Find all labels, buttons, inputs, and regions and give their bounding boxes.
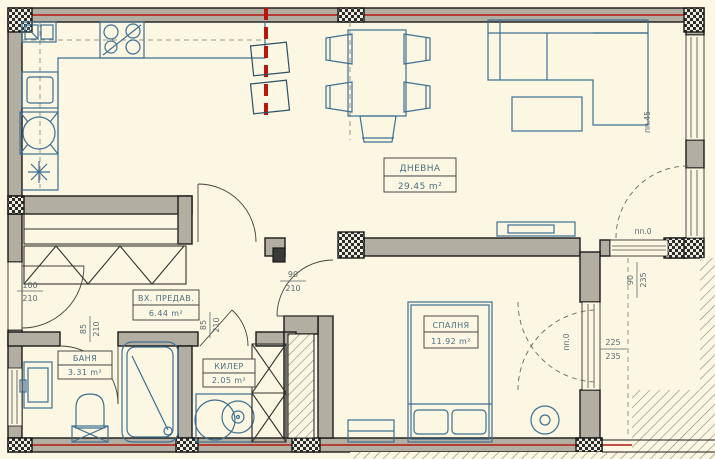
column-bottom-c <box>576 438 602 452</box>
hall-name: ВХ. ПРЕДАВ. <box>138 294 194 303</box>
dim-closet-door: 85 210 <box>199 312 221 338</box>
label-living: ДНЕВНА 29.45 m² <box>384 158 456 192</box>
bedroom-top-wall <box>364 238 580 256</box>
column-center <box>338 232 364 258</box>
dining-set <box>326 22 430 142</box>
dim-bath-door: 85 210 <box>79 316 101 342</box>
left-wall-mid <box>8 214 22 262</box>
washing-machine-icon <box>195 394 254 442</box>
dim-terrace-door: 225 235 <box>600 338 627 361</box>
round-sink-icon <box>20 112 58 154</box>
chair-icon-right-2 <box>404 82 430 112</box>
dim-entrance-h: 210 <box>22 294 37 303</box>
bedroom-right-wall-up <box>580 252 600 302</box>
hall-wall-jog <box>178 196 192 244</box>
closet-area: 2.05 m² <box>212 376 246 385</box>
column-top-mid <box>338 8 364 22</box>
shelf-unit-icon <box>252 344 286 442</box>
dim-closet-h: 210 <box>212 317 221 332</box>
right-wall-b <box>686 140 704 168</box>
left-wall-upper <box>8 22 22 196</box>
bath-name: БАНЯ <box>73 354 97 363</box>
living-room-door <box>198 184 256 242</box>
column-bottom-a <box>176 438 198 452</box>
boiler-star-icon <box>28 161 50 183</box>
bathtub-icon <box>122 342 178 442</box>
dim-bedroom-h: 210 <box>285 284 300 293</box>
dim-balcony-window: 90 235 <box>626 262 648 298</box>
bath-area: 3.31 m² <box>68 368 102 377</box>
sill-label-terrace: пп.0 <box>562 333 571 350</box>
dim-balcony-h: 235 <box>639 272 648 287</box>
sill-label-right: пп.45 <box>643 111 652 133</box>
entrance-opening <box>8 262 22 330</box>
balcony-wall-a <box>600 240 610 256</box>
sofa-area <box>488 20 648 131</box>
bedroom-name: СПАЛНЯ <box>432 321 469 330</box>
dim-entrance-w: 100 <box>22 281 37 290</box>
window-right-top <box>686 35 704 140</box>
hall-area: 6.44 m² <box>149 309 183 318</box>
dining-table-icon <box>348 30 406 116</box>
bottom-edge-hatch <box>350 452 715 459</box>
right-edge-hatch <box>700 258 715 392</box>
pouf-icon <box>531 406 559 434</box>
balcony-door-swing-dashed <box>616 166 688 238</box>
sink-cabinet-icon <box>22 72 58 108</box>
hatched-areas <box>288 258 715 459</box>
window-bath <box>8 368 22 426</box>
dim-bedroom-w: 90 <box>288 270 298 279</box>
window-balcony-top <box>610 240 668 256</box>
kitchen <box>20 8 289 190</box>
bath-wall-b <box>118 332 198 346</box>
chair-icon-right-1 <box>404 34 430 64</box>
shaft-hatch <box>288 334 314 438</box>
vent-flap-icon-1 <box>251 42 290 76</box>
terrace-door-opening <box>582 302 600 390</box>
bath-closet-divider <box>178 346 192 438</box>
balcony-corner-hatch <box>632 390 715 459</box>
chair-icon-bottom <box>360 116 396 142</box>
label-bath: БАНЯ 3.31 m² <box>58 351 112 379</box>
closet-name: КИЛЕР <box>214 362 244 371</box>
label-bedroom: СПАЛНЯ 11.92 m² <box>424 316 478 348</box>
bedroom-area: 11.92 m² <box>431 337 471 346</box>
dim-closet-w: 85 <box>199 320 208 330</box>
walls <box>8 8 713 452</box>
coat-rack-icon <box>24 246 186 284</box>
sill-label-top: пп.0 <box>635 227 652 236</box>
washbasin-icon <box>20 362 52 408</box>
wardrobe-icon <box>24 214 178 244</box>
door-frame-stub <box>273 248 285 262</box>
room-labels: ДНЕВНА 29.45 m² СПАЛНЯ 11.92 m² ВХ. ПРЕД… <box>58 158 478 387</box>
vent-flap-icon-2 <box>251 80 290 114</box>
shaft-top-wall <box>284 316 318 334</box>
column-top-right <box>684 8 704 32</box>
living-room-name: ДНЕВНА <box>400 164 441 174</box>
dim-bath-h: 210 <box>92 321 101 336</box>
toilet-icon <box>72 394 108 442</box>
column-left-mid <box>8 196 24 214</box>
column-bottom-left <box>8 438 32 452</box>
dim-terrace-w: 225 <box>605 338 620 347</box>
column-bottom-b <box>292 438 320 452</box>
label-closet: КИЛЕР 2.05 m² <box>203 359 255 387</box>
floor-plan: ДНЕВНА 29.45 m² СПАЛНЯ 11.92 m² ВХ. ПРЕД… <box>0 0 715 459</box>
hall-top-wall <box>8 196 192 214</box>
label-hall: ВХ. ПРЕДАВ. 6.44 m² <box>133 290 199 320</box>
bedroom-right-wall-down <box>580 390 600 438</box>
tv-unit-icon <box>497 222 575 236</box>
dim-bath-w: 85 <box>79 324 88 334</box>
dim-terrace-h: 235 <box>605 352 620 361</box>
bedroom-left-wall <box>318 316 333 438</box>
column-right-corner <box>684 238 704 258</box>
living-room-area: 29.45 m² <box>398 182 442 192</box>
bath-wall-a <box>8 332 60 346</box>
dim-balcony-w: 90 <box>626 275 635 285</box>
window-right-mid <box>686 168 704 238</box>
floor-plan-svg: ДНЕВНА 29.45 m² СПАЛНЯ 11.92 m² ВХ. ПРЕД… <box>0 0 715 459</box>
coffee-table-icon <box>512 97 582 131</box>
hall-furniture <box>24 214 186 284</box>
